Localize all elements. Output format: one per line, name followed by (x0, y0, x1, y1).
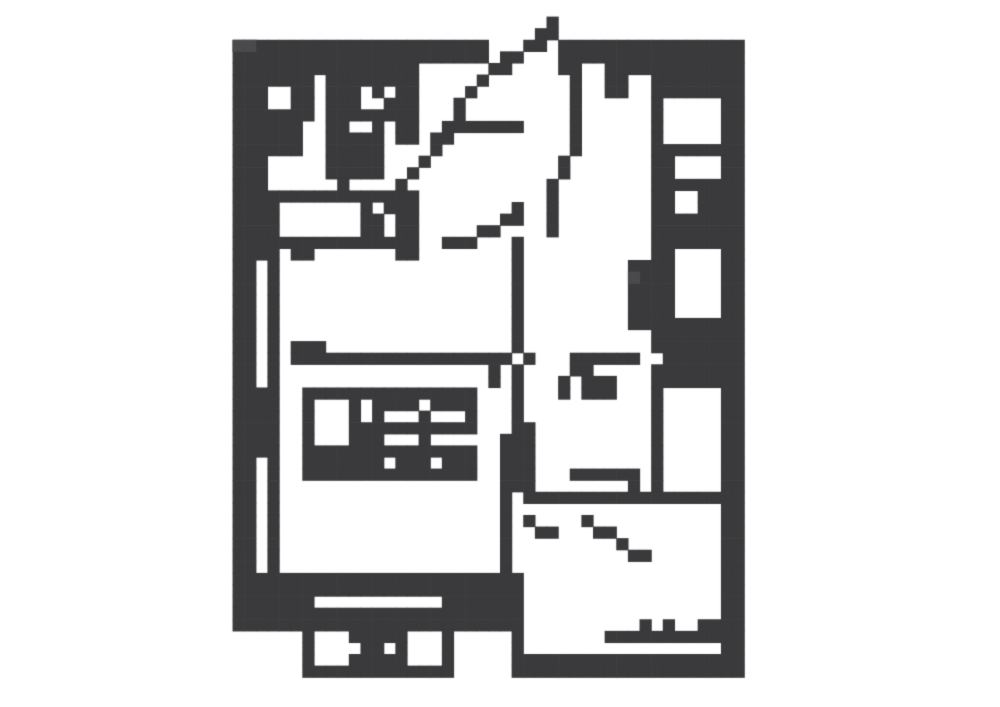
floor-plan-canvas (0, 0, 1000, 707)
floor-plan (0, 0, 1000, 707)
